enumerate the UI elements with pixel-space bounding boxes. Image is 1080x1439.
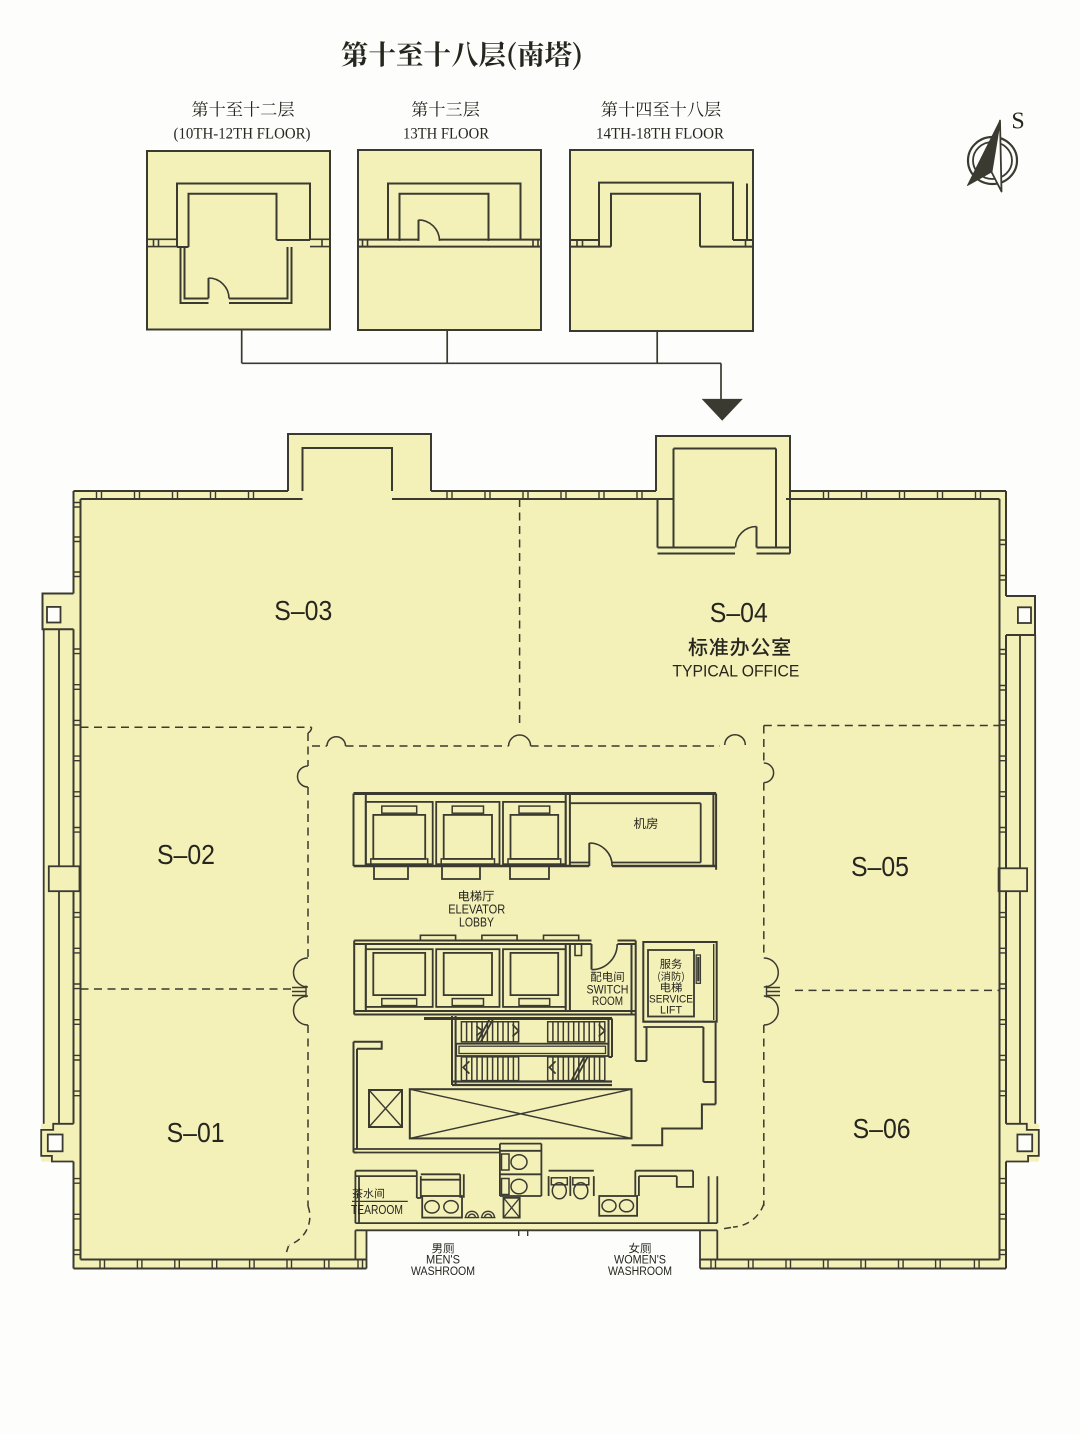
svg-text:S: S <box>1011 109 1024 135</box>
svg-text:SWITCH: SWITCH <box>587 985 629 997</box>
svg-text:ELEVATOR: ELEVATOR <box>448 903 505 917</box>
svg-text:MEN'S: MEN'S <box>426 1255 460 1267</box>
svg-text:14TH-18TH FLOOR: 14TH-18TH FLOOR <box>596 126 725 143</box>
svg-text:S–04: S–04 <box>710 597 768 628</box>
svg-text:13TH FLOOR: 13TH FLOOR <box>403 126 490 143</box>
svg-text:ROOM: ROOM <box>592 996 623 1008</box>
svg-text:WASHROOM: WASHROOM <box>608 1266 672 1278</box>
svg-text:LIFT: LIFT <box>660 1005 682 1017</box>
svg-text:LOBBY: LOBBY <box>459 916 495 930</box>
svg-text:(10TH-12TH FLOOR): (10TH-12TH FLOOR) <box>174 126 311 143</box>
svg-text:WASHROOM: WASHROOM <box>411 1266 475 1278</box>
svg-text:S–03: S–03 <box>274 595 332 626</box>
svg-text:S–05: S–05 <box>851 851 909 882</box>
svg-text:S–06: S–06 <box>853 1113 911 1144</box>
svg-text:S–01: S–01 <box>167 1117 225 1148</box>
svg-text:TYPICAL OFFICE: TYPICAL OFFICE <box>672 663 799 681</box>
svg-text:TEAROOM: TEAROOM <box>351 1203 403 1217</box>
svg-text:WOMEN'S: WOMEN'S <box>614 1255 666 1267</box>
svg-text:S–02: S–02 <box>157 839 215 870</box>
